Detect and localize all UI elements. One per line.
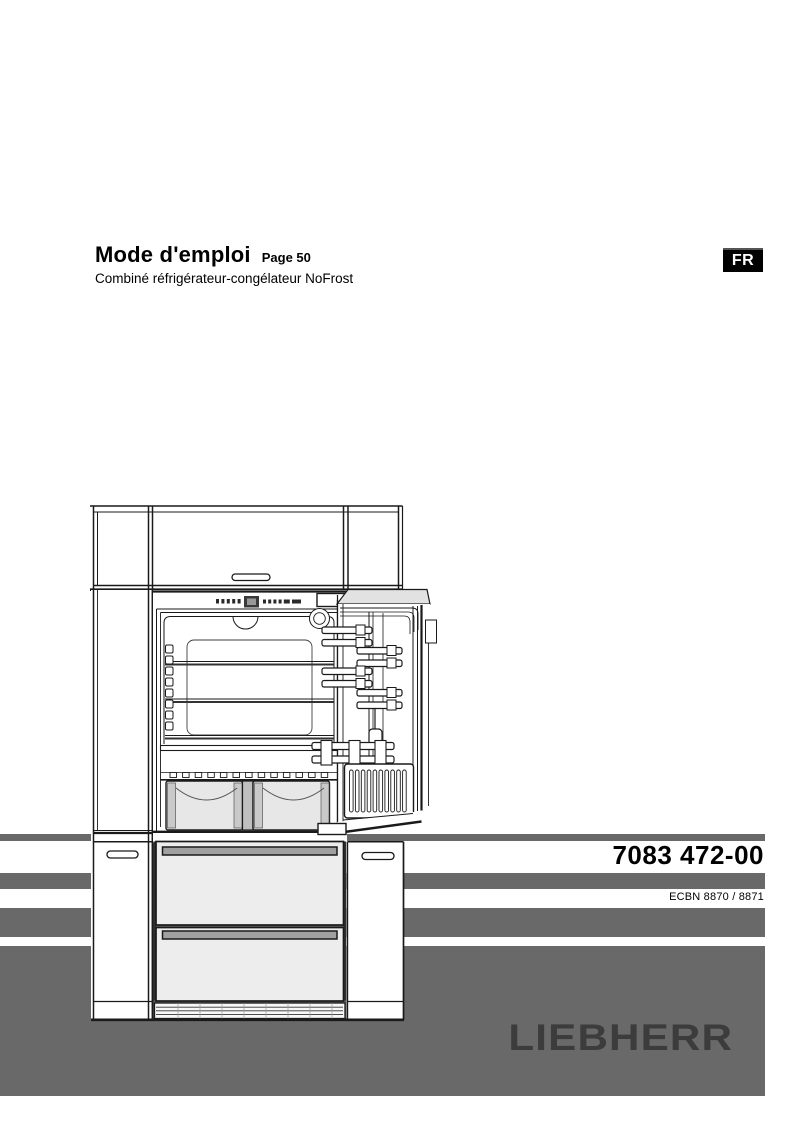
manual-cover-page: Mode d'emploi Page 50 Combiné réfrigérat… bbox=[0, 0, 802, 1134]
right-cabinet-column bbox=[347, 841, 405, 1020]
interior-lamp-icon bbox=[310, 609, 330, 629]
freezer-drawer bbox=[156, 842, 344, 926]
crisper-drawer bbox=[253, 781, 330, 830]
left-cabinet-column bbox=[91, 590, 153, 1020]
right-door-handle bbox=[362, 853, 394, 860]
service-part-number: 7083 472-00 bbox=[612, 840, 764, 871]
left-door-handle bbox=[107, 851, 138, 858]
drawer-handle bbox=[163, 931, 338, 939]
liebherr-logo: LIEBHERR bbox=[508, 1017, 733, 1059]
door-ribbed-panel bbox=[345, 764, 414, 818]
upper-cabinets bbox=[90, 505, 430, 590]
crisper-drawer bbox=[166, 781, 243, 830]
cabinet-door-handle bbox=[232, 574, 270, 581]
fridge-freezer-illustration-icon bbox=[90, 500, 456, 1024]
model-codes: ECBN 8870 / 8871 bbox=[669, 891, 764, 903]
freezer-drawers-unit bbox=[153, 842, 346, 1019]
drawer-handle bbox=[163, 847, 338, 855]
freezer-drawer bbox=[156, 928, 344, 1002]
plinth-vent-grille bbox=[155, 1003, 346, 1019]
fridge-interior bbox=[153, 590, 347, 843]
